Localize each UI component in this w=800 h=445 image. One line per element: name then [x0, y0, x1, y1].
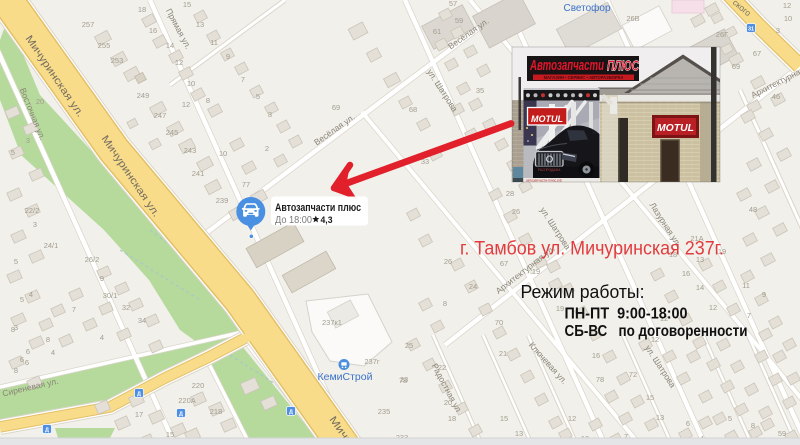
svg-text:г. Тамбов ул. Мичуринская 237г: г. Тамбов ул. Мичуринская 237г.: [460, 238, 724, 260]
svg-text:237к1: 237к1: [322, 318, 342, 327]
svg-text:247: 247: [154, 111, 167, 120]
svg-text:15: 15: [646, 393, 654, 402]
svg-text:48: 48: [749, 205, 757, 214]
svg-text:4: 4: [51, 348, 55, 357]
svg-text:19: 19: [556, 304, 564, 313]
svg-text:9: 9: [762, 290, 766, 299]
svg-text:77: 77: [242, 180, 250, 189]
svg-text:30/1: 30/1: [103, 291, 118, 300]
svg-text:10: 10: [784, 14, 792, 23]
svg-text:6: 6: [25, 358, 29, 367]
svg-text:218: 218: [210, 407, 223, 416]
svg-text:24/1: 24/1: [44, 241, 59, 250]
svg-text:31: 31: [748, 27, 754, 33]
svg-text:СБ-ВС по договоренности: СБ-ВС по договоренности: [565, 323, 748, 340]
svg-text:8: 8: [46, 335, 50, 344]
svg-text:2: 2: [265, 144, 269, 153]
svg-text:Автозапчасти плюс: Автозапчасти плюс: [275, 202, 361, 214]
svg-text:57: 57: [449, 0, 457, 8]
svg-text:72: 72: [629, 370, 637, 379]
svg-text:5: 5: [14, 257, 18, 266]
svg-text:6: 6: [26, 347, 30, 356]
svg-text:22/2: 22/2: [25, 206, 40, 215]
svg-text:6: 6: [686, 419, 690, 428]
svg-text:10: 10: [187, 79, 195, 88]
svg-text:4,3: 4,3: [321, 215, 333, 226]
svg-text:До 18:00: До 18:00: [275, 215, 313, 226]
svg-text:78: 78: [399, 376, 407, 385]
svg-text:РАСПРОДАЖА: РАСПРОДАЖА: [538, 168, 561, 172]
svg-text:12: 12: [568, 414, 576, 423]
svg-text:8: 8: [751, 421, 755, 430]
svg-text:235: 235: [378, 407, 391, 416]
svg-text:14: 14: [166, 41, 174, 50]
svg-text:5: 5: [11, 148, 15, 157]
svg-text:ПЛЮС: ПЛЮС: [607, 59, 639, 75]
svg-text:18: 18: [138, 5, 146, 14]
svg-text:67: 67: [500, 259, 508, 268]
svg-text:18: 18: [448, 414, 456, 423]
svg-text:МАГАЗИН • СЕРВИС • АВТОРАЗБОРК: МАГАЗИН • СЕРВИС • АВТОРАЗБОРКА: [544, 75, 624, 80]
svg-text:8: 8: [443, 299, 447, 308]
svg-text:245: 245: [166, 128, 179, 137]
svg-text:26: 26: [444, 257, 452, 266]
svg-text:3: 3: [14, 323, 18, 332]
svg-text:8: 8: [206, 96, 210, 105]
svg-text:15: 15: [500, 414, 508, 423]
svg-text:5: 5: [728, 414, 732, 423]
svg-text:70: 70: [495, 318, 503, 327]
svg-text:16: 16: [592, 351, 600, 360]
svg-text:20: 20: [36, 97, 44, 106]
svg-text:34: 34: [138, 316, 146, 325]
svg-text:Д: Д: [179, 412, 183, 418]
svg-text:249: 249: [137, 91, 150, 100]
svg-text:Режим работы:: Режим работы:: [521, 282, 645, 302]
svg-text:16: 16: [149, 26, 157, 35]
svg-text:26Г: 26Г: [716, 30, 728, 39]
svg-text:3: 3: [776, 26, 780, 35]
svg-text:Д: Д: [289, 410, 293, 416]
svg-text:61: 61: [433, 27, 441, 36]
svg-text:MOTUL: MOTUL: [657, 122, 694, 134]
svg-text:78: 78: [596, 375, 604, 384]
svg-text:68: 68: [409, 105, 417, 114]
svg-text:241: 241: [192, 169, 205, 178]
svg-text:16: 16: [682, 269, 690, 278]
svg-text:Д: Д: [45, 428, 49, 434]
svg-text:69: 69: [732, 62, 740, 71]
svg-text:220А: 220А: [178, 396, 196, 405]
svg-text:13: 13: [515, 429, 523, 438]
svg-text:253: 253: [111, 56, 124, 65]
svg-text:3: 3: [33, 220, 37, 229]
svg-text:13: 13: [196, 20, 204, 29]
svg-text:4: 4: [29, 290, 33, 299]
svg-text:15: 15: [183, 0, 191, 9]
svg-text:25: 25: [405, 341, 413, 350]
svg-text:26/2: 26/2: [85, 255, 100, 264]
svg-text:10: 10: [219, 149, 227, 158]
svg-text:ПН-ПТ 9:00-18:00: ПН-ПТ 9:00-18:00: [565, 306, 688, 323]
svg-text:257: 257: [82, 20, 95, 29]
svg-text:14: 14: [696, 283, 704, 292]
svg-text:28: 28: [506, 189, 514, 198]
svg-text:255: 255: [98, 41, 111, 50]
svg-text:35: 35: [476, 86, 484, 95]
svg-text:26В: 26В: [626, 14, 639, 23]
svg-text:24: 24: [469, 282, 477, 291]
svg-text:17: 17: [135, 410, 143, 419]
svg-text:7: 7: [241, 75, 245, 84]
svg-text:12: 12: [709, 303, 717, 312]
svg-text:7: 7: [72, 305, 76, 314]
svg-text:237г: 237г: [364, 357, 380, 366]
svg-text:Д: Д: [137, 392, 141, 398]
svg-text:5: 5: [256, 92, 260, 101]
svg-text:32: 32: [122, 303, 130, 312]
svg-text:12: 12: [182, 100, 190, 109]
svg-text:MOTUL: MOTUL: [531, 114, 563, 125]
svg-text:26: 26: [512, 207, 520, 216]
svg-text:46: 46: [772, 92, 780, 101]
svg-text:9: 9: [226, 52, 230, 61]
svg-text:4: 4: [100, 333, 104, 342]
svg-text:6: 6: [20, 355, 24, 364]
svg-text:21: 21: [499, 349, 507, 358]
svg-text:243: 243: [184, 146, 197, 155]
svg-text:13: 13: [656, 413, 664, 422]
svg-text:9: 9: [100, 274, 104, 283]
svg-text:239: 239: [216, 196, 229, 205]
svg-text:67: 67: [753, 49, 761, 58]
svg-text:59: 59: [455, 16, 463, 25]
svg-text:Светофор: Светофор: [563, 2, 610, 14]
svg-text:12: 12: [175, 58, 183, 67]
svg-text:59: 59: [778, 429, 786, 438]
svg-text:11: 11: [210, 38, 218, 47]
svg-text:5: 5: [20, 295, 24, 304]
svg-text:12: 12: [783, 1, 791, 10]
svg-text:11: 11: [742, 281, 750, 290]
svg-text:8: 8: [14, 366, 18, 375]
svg-text:69: 69: [332, 103, 340, 112]
svg-text:3: 3: [26, 136, 30, 145]
svg-text:7: 7: [747, 311, 751, 320]
svg-text:Автозапчасти: Автозапчасти: [529, 58, 604, 74]
svg-text:220: 220: [192, 381, 205, 390]
svg-text:КемиСтрой: КемиСтрой: [318, 371, 373, 383]
svg-text:3: 3: [268, 110, 272, 119]
